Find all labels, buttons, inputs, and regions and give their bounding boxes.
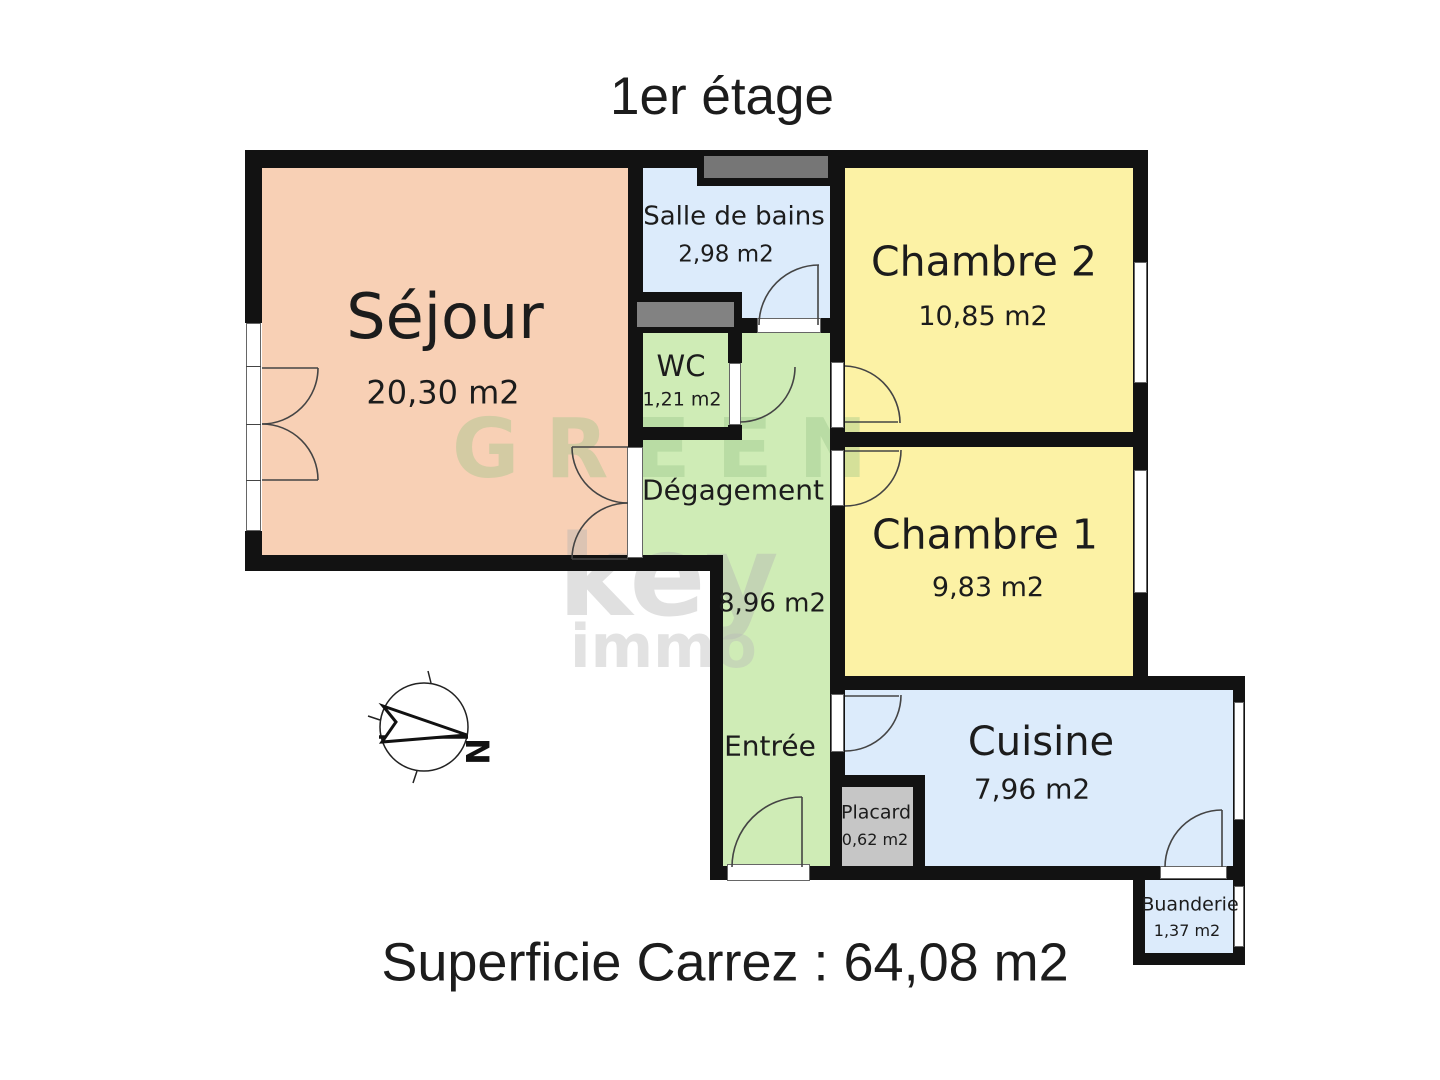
compass-tick-bottom	[413, 771, 417, 783]
label-degagement: Dégagement	[642, 476, 824, 507]
compass-tick-left	[368, 716, 380, 720]
area-chambre1: 9,83 m2	[932, 573, 1044, 603]
area-buanderie: 1,37 m2	[1154, 922, 1220, 940]
floor-plan: GREEN key immo	[0, 0, 1440, 1080]
area-chambre2: 10,85 m2	[918, 302, 1047, 332]
label-buanderie: Buanderie	[1141, 895, 1238, 916]
compass-north-label: N	[458, 738, 496, 765]
label-entree: Entrée	[724, 732, 816, 763]
area-sejour: 20,30 m2	[366, 375, 519, 410]
door-arc-buanderie	[1165, 810, 1222, 867]
door-arc-window-top	[262, 368, 318, 424]
page-title: 1er étage	[610, 68, 834, 126]
door-arc-cuisine	[845, 695, 901, 751]
door-arc-entree	[732, 797, 802, 867]
compass-north-arrow	[382, 706, 467, 742]
label-sejour: Séjour	[346, 283, 543, 351]
door-arc-wc	[740, 367, 795, 422]
plan-overlay: N	[0, 0, 1440, 1080]
door-arc-window-bottom	[262, 424, 318, 480]
footer-total-area: Superficie Carrez : 64,08 m2	[381, 933, 1068, 992]
label-wc: WC	[657, 351, 706, 383]
door-arc-salle-de-bains	[759, 265, 819, 325]
label-salle-de-bains: Salle de bains	[643, 203, 825, 232]
area-placard: 0,62 m2	[842, 831, 908, 849]
area-salle-de-bains: 2,98 m2	[678, 242, 774, 267]
label-cuisine: Cuisine	[968, 720, 1114, 764]
door-arc-sejour-bottom	[572, 503, 628, 559]
area-degagement: 8,96 m2	[718, 590, 826, 619]
area-wc: 1,21 m2	[643, 390, 722, 411]
compass-tick-top	[428, 671, 431, 683]
door-arc-sejour-top	[572, 447, 628, 503]
area-cuisine: 7,96 m2	[974, 775, 1090, 806]
door-arc-chambre1	[845, 450, 901, 506]
compass: N	[368, 671, 496, 783]
door-arc-chambre2	[845, 366, 900, 423]
label-chambre2: Chambre 2	[871, 239, 1097, 284]
label-placard: Placard	[841, 803, 911, 824]
label-chambre1: Chambre 1	[872, 512, 1098, 557]
